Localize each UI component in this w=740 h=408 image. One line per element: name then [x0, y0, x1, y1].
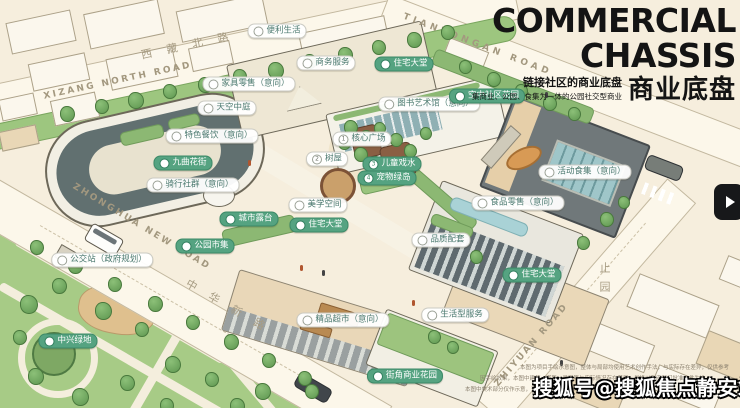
map-label-13: 3儿童戏水 — [362, 157, 421, 172]
tree-icon — [95, 302, 112, 320]
tree-icon — [135, 322, 149, 337]
map-label-3: 家具零售（意向） — [202, 77, 295, 92]
context-building — [83, 0, 165, 50]
label-marker-icon — [57, 255, 67, 265]
tree-icon — [262, 353, 276, 368]
map-label-0: 便利生活 — [247, 24, 306, 39]
label-marker-icon — [427, 310, 437, 320]
map-label-25: 公园市集 — [175, 239, 234, 254]
tree-icon — [420, 127, 432, 140]
tree-icon — [447, 341, 459, 354]
bus-windows — [92, 228, 117, 245]
label-text: 特色餐饮（意向） — [184, 132, 252, 141]
label-marker-icon — [508, 270, 518, 280]
label-text: 宠物绿岛 — [376, 174, 410, 183]
tree-icon — [28, 368, 44, 385]
map-illustration: XIZANG NORTH ROAD 西藏北路 TIANTONGAN ROAD Z… — [0, 0, 740, 408]
label-marker-icon — [302, 315, 312, 325]
decor — [322, 270, 325, 276]
video-play-button[interactable] — [714, 184, 740, 220]
play-icon — [726, 196, 735, 208]
tree-icon — [163, 84, 177, 99]
label-text: 树屋 — [325, 155, 342, 164]
label-text: 公园市集 — [194, 242, 228, 251]
label-marker-icon — [373, 371, 383, 381]
disclaimer-line: 本图为项目手绘示意图，整体与局部均使用艺术创作手法，与实际存在差异，仅供参考 — [520, 366, 729, 372]
label-text: 九曲花街 — [172, 159, 206, 168]
map-label-22: 精品超市（意向） — [296, 313, 389, 328]
map-label-14: 4宠物绿岛 — [357, 171, 416, 186]
tree-icon — [186, 315, 200, 330]
car — [643, 154, 684, 183]
map-label-20: 住宅大堂 — [502, 268, 561, 283]
tree-icon — [568, 107, 581, 121]
tree-icon — [160, 398, 174, 408]
map-label-4: 天空中庭 — [197, 101, 256, 116]
map-label-1: 商务服务 — [296, 56, 355, 71]
tree-icon — [205, 372, 219, 387]
label-marker-icon — [294, 200, 304, 210]
label-text: 公交站（政府规划） — [70, 256, 147, 265]
label-text: 美学空间 — [307, 201, 341, 210]
label-marker-icon — [203, 103, 213, 113]
label-text: 骑行社群（意向） — [165, 181, 233, 190]
tree-icon — [390, 133, 403, 147]
map-label-19: 品质配套 — [411, 233, 470, 248]
label-marker-icon: 2 — [312, 154, 322, 164]
context-building — [626, 273, 719, 339]
road-label-zhiyuan-zh: 止园 — [596, 262, 612, 300]
tree-icon — [30, 240, 44, 255]
map-label-6: 九曲花街 — [153, 156, 212, 171]
map-label-7: 骑行社群（意向） — [146, 178, 239, 193]
label-text: 住宅大堂 — [308, 221, 342, 230]
tree-icon — [600, 212, 614, 227]
label-marker-icon — [225, 214, 235, 224]
label-marker-icon — [44, 336, 54, 346]
context-building — [5, 9, 76, 54]
map-label-24: 公交站（政府规划） — [51, 253, 153, 268]
label-marker-icon — [181, 241, 191, 251]
tree-icon — [255, 383, 271, 400]
tree-icon — [120, 375, 135, 391]
page-title: COMMERCIAL CHASSIS — [366, 4, 736, 73]
tree-icon — [577, 236, 590, 250]
title-block: COMMERCIAL CHASSIS 链接社区的商业底盘 集商业、公园、食集为一… — [366, 4, 736, 102]
map-label-26: 中兴绿地 — [38, 334, 97, 349]
map-label-9: 美学空间 — [288, 198, 347, 213]
label-marker-icon — [295, 220, 305, 230]
label-marker-icon — [417, 235, 427, 245]
map-label-10: 住宅大堂 — [289, 218, 348, 233]
map-label-8: 城市露台 — [219, 212, 278, 227]
decor — [300, 265, 303, 271]
watermark: 搜狐号@搜狐焦点静安站 — [533, 372, 740, 401]
label-text: 生活型服务 — [440, 311, 483, 320]
label-text: 天空中庭 — [216, 104, 250, 113]
subtitle-line1: 链接社区的商业底盘 — [472, 74, 622, 90]
label-text: 儿童戏水 — [381, 160, 415, 169]
label-marker-icon: 1 — [338, 134, 348, 144]
tree-icon — [305, 384, 319, 399]
label-text: 中兴绿地 — [57, 337, 91, 346]
label-marker-icon — [253, 26, 263, 36]
subtitle-line2: 集商业、公园、食集为一体的公园社交型商业 — [472, 91, 622, 102]
tree-icon — [618, 196, 630, 209]
label-text: 核心广场 — [351, 135, 385, 144]
tree-icon — [20, 295, 38, 314]
label-marker-icon — [171, 131, 181, 141]
label-marker-icon — [208, 79, 218, 89]
label-text: 商务服务 — [315, 59, 349, 68]
tree-icon — [230, 398, 245, 408]
label-text: 食品零售（意向） — [490, 199, 558, 208]
map-label-11: 1核心广场 — [332, 132, 391, 147]
tree-icon — [128, 92, 144, 109]
label-text: 活动食集（意向） — [557, 168, 625, 177]
label-marker-icon — [544, 167, 554, 177]
label-text: 街角商业花园 — [386, 372, 437, 381]
tree-icon — [108, 277, 122, 292]
label-marker-icon — [152, 180, 162, 190]
decor — [248, 160, 251, 166]
tree-icon — [60, 106, 75, 122]
tree-icon — [52, 278, 67, 294]
map-label-17: 活动食集（意向） — [538, 165, 631, 180]
label-marker-icon — [159, 158, 169, 168]
tree-icon — [470, 250, 483, 264]
map-label-12: 2树屋 — [306, 152, 348, 167]
label-marker-icon: 3 — [368, 159, 378, 169]
map-label-5: 特色餐饮（意向） — [165, 129, 258, 144]
map-label-18: 食品零售（意向） — [471, 196, 564, 211]
tree-icon — [165, 356, 181, 373]
label-text: 精品超市（意向） — [315, 316, 383, 325]
label-text: 城市露台 — [238, 215, 272, 224]
label-marker-icon: 4 — [363, 173, 373, 183]
label-text: 品质配套 — [430, 236, 464, 245]
map-label-23: 街角商业花园 — [367, 369, 443, 384]
tree-icon — [224, 334, 239, 350]
label-text: 家具零售（意向） — [221, 80, 289, 89]
label-marker-icon — [477, 198, 487, 208]
context-building — [719, 255, 740, 295]
tree-icon — [428, 330, 441, 344]
decor — [412, 300, 415, 306]
tree-icon — [13, 330, 27, 345]
tree-icon — [148, 296, 163, 312]
title-chinese: 商业底盘 — [628, 78, 736, 103]
label-text: 住宅大堂 — [521, 271, 555, 280]
label-marker-icon — [302, 58, 312, 68]
map-label-21: 生活型服务 — [421, 308, 489, 323]
tree-icon — [95, 99, 109, 114]
tree-icon — [72, 388, 89, 406]
label-text: 便利生活 — [266, 27, 300, 36]
